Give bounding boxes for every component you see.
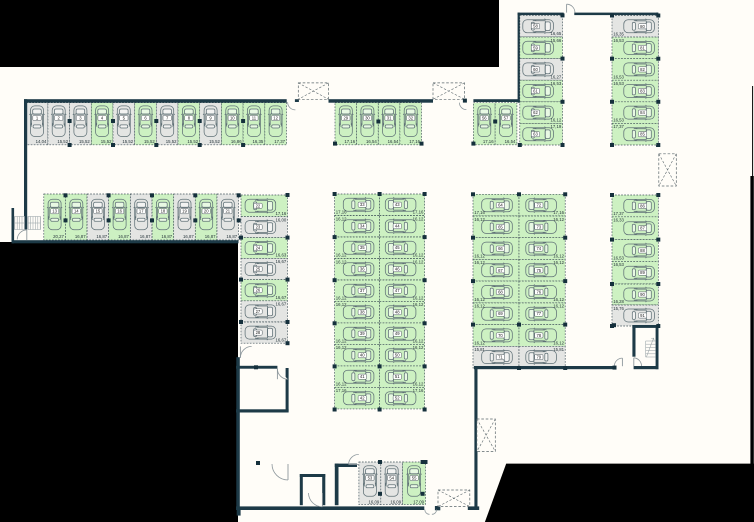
svg-text:16,87: 16,87 <box>226 234 237 239</box>
svg-text:16,12: 16,12 <box>553 217 564 222</box>
svg-text:54: 54 <box>389 476 394 481</box>
svg-text:16,12: 16,12 <box>474 217 485 222</box>
svg-text:16,12: 16,12 <box>336 339 347 344</box>
svg-text:16,12: 16,12 <box>413 339 424 344</box>
svg-text:73: 73 <box>536 224 541 229</box>
svg-text:52: 52 <box>395 396 400 401</box>
svg-text:49: 49 <box>395 331 400 336</box>
svg-text:23: 23 <box>256 225 261 230</box>
svg-text:17,19: 17,19 <box>551 124 562 129</box>
svg-text:16,12: 16,12 <box>553 341 564 346</box>
svg-text:22: 22 <box>256 203 261 208</box>
svg-text:16,12: 16,12 <box>413 296 424 301</box>
svg-text:15,52: 15,52 <box>144 139 155 144</box>
svg-text:72: 72 <box>536 203 541 208</box>
svg-text:15,52: 15,52 <box>187 139 198 144</box>
svg-text:40: 40 <box>360 353 365 358</box>
svg-text:44: 44 <box>395 224 400 229</box>
svg-text:16,67: 16,67 <box>276 295 287 300</box>
svg-text:17,16: 17,16 <box>553 210 564 215</box>
svg-text:15,66: 15,66 <box>551 38 562 43</box>
svg-text:16: 16 <box>117 209 122 214</box>
svg-text:16,27: 16,27 <box>551 74 562 79</box>
svg-text:36: 36 <box>360 267 365 272</box>
svg-text:37: 37 <box>360 288 365 293</box>
svg-text:12: 12 <box>273 116 278 121</box>
svg-text:50: 50 <box>395 353 400 358</box>
svg-text:24: 24 <box>256 246 261 251</box>
svg-text:16,12: 16,12 <box>474 260 485 265</box>
svg-text:14: 14 <box>74 209 79 214</box>
svg-text:16,35: 16,35 <box>253 139 264 144</box>
svg-text:82: 82 <box>640 67 645 72</box>
svg-text:21: 21 <box>225 209 230 214</box>
svg-text:17,09: 17,09 <box>413 499 424 504</box>
svg-text:18: 18 <box>161 209 166 214</box>
svg-text:55: 55 <box>412 476 417 481</box>
svg-text:16,09: 16,09 <box>390 499 401 504</box>
svg-text:45: 45 <box>395 245 400 250</box>
svg-text:17,16: 17,16 <box>474 210 485 215</box>
svg-text:16,65: 16,65 <box>551 31 562 36</box>
svg-text:16,12: 16,12 <box>474 341 485 346</box>
svg-text:16,12: 16,12 <box>474 297 485 302</box>
svg-text:16,54: 16,54 <box>388 139 399 144</box>
svg-text:16,33: 16,33 <box>613 218 624 223</box>
svg-text:19: 19 <box>182 209 187 214</box>
svg-text:51: 51 <box>395 374 400 379</box>
svg-text:16,87: 16,87 <box>75 234 86 239</box>
svg-text:16,87: 16,87 <box>96 234 107 239</box>
svg-text:16,87: 16,87 <box>118 234 129 239</box>
svg-text:16,87: 16,87 <box>183 234 194 239</box>
svg-text:86: 86 <box>640 203 645 208</box>
svg-text:16,35: 16,35 <box>613 31 624 36</box>
svg-text:10: 10 <box>230 116 235 121</box>
svg-text:81: 81 <box>640 45 645 50</box>
svg-text:16,53: 16,53 <box>613 256 624 261</box>
svg-text:88: 88 <box>640 248 645 253</box>
svg-text:87: 87 <box>640 226 645 231</box>
svg-text:16,54: 16,54 <box>505 139 516 144</box>
svg-text:89: 89 <box>640 270 645 275</box>
svg-text:35: 35 <box>360 245 365 250</box>
svg-text:42: 42 <box>360 396 365 401</box>
svg-text:28: 28 <box>256 330 261 335</box>
svg-text:16,53: 16,53 <box>613 81 624 86</box>
svg-text:16,28: 16,28 <box>613 299 624 304</box>
svg-text:15,81: 15,81 <box>474 347 485 352</box>
svg-text:34: 34 <box>360 224 365 229</box>
svg-text:20: 20 <box>204 209 209 214</box>
svg-text:77: 77 <box>536 311 541 316</box>
svg-text:17,37: 17,37 <box>613 211 624 216</box>
svg-text:75: 75 <box>536 268 541 273</box>
svg-text:16,53: 16,53 <box>613 38 624 43</box>
svg-text:16,12: 16,12 <box>336 259 347 264</box>
svg-text:17: 17 <box>139 209 144 214</box>
svg-text:15,52: 15,52 <box>57 139 68 144</box>
svg-text:76: 76 <box>536 290 541 295</box>
svg-text:26: 26 <box>256 288 261 293</box>
svg-text:16,12: 16,12 <box>474 304 485 309</box>
svg-text:90: 90 <box>640 292 645 297</box>
svg-text:65: 65 <box>498 224 503 229</box>
svg-text:33: 33 <box>360 202 365 207</box>
svg-text:29: 29 <box>343 116 348 121</box>
svg-text:11: 11 <box>252 116 257 121</box>
svg-text:15,81: 15,81 <box>553 347 564 352</box>
svg-text:16,12: 16,12 <box>413 216 424 221</box>
svg-text:15,52: 15,52 <box>101 139 112 144</box>
svg-text:83: 83 <box>640 89 645 94</box>
svg-text:32: 32 <box>408 116 413 121</box>
svg-text:15: 15 <box>96 209 101 214</box>
svg-text:16,12: 16,12 <box>553 254 564 259</box>
svg-text:16,87: 16,87 <box>161 234 172 239</box>
svg-text:74: 74 <box>536 246 541 251</box>
svg-text:16,12: 16,12 <box>553 260 564 265</box>
svg-text:13: 13 <box>52 209 57 214</box>
svg-text:16,54: 16,54 <box>366 139 377 144</box>
svg-text:84: 84 <box>640 110 645 115</box>
svg-text:17,37: 17,37 <box>613 124 624 129</box>
svg-text:61: 61 <box>533 89 538 94</box>
svg-text:16,12: 16,12 <box>413 259 424 264</box>
svg-text:64: 64 <box>498 203 503 208</box>
svg-text:16,12: 16,12 <box>553 297 564 302</box>
svg-text:57: 57 <box>504 116 509 121</box>
svg-text:15,52: 15,52 <box>79 139 90 144</box>
svg-text:16,12: 16,12 <box>413 345 424 350</box>
svg-text:70: 70 <box>498 333 503 338</box>
svg-text:16,67: 16,67 <box>276 302 287 307</box>
svg-text:15,52: 15,52 <box>166 139 177 144</box>
svg-text:17,16: 17,16 <box>276 211 287 216</box>
svg-text:58: 58 <box>533 24 538 29</box>
svg-text:20,27: 20,27 <box>53 234 64 239</box>
svg-text:17,16: 17,16 <box>336 388 347 393</box>
svg-text:16,12: 16,12 <box>336 296 347 301</box>
svg-text:15,52: 15,52 <box>209 139 220 144</box>
svg-text:17,16: 17,16 <box>413 388 424 393</box>
svg-text:16,12: 16,12 <box>413 302 424 307</box>
svg-text:14,04: 14,04 <box>36 139 47 144</box>
svg-text:16,12: 16,12 <box>413 382 424 387</box>
svg-text:25: 25 <box>256 267 261 272</box>
svg-text:63: 63 <box>533 132 538 137</box>
svg-text:17,16: 17,16 <box>413 210 424 215</box>
svg-text:91: 91 <box>640 313 645 318</box>
svg-text:15,52: 15,52 <box>122 139 133 144</box>
svg-text:16,09: 16,09 <box>369 499 380 504</box>
svg-text:80: 80 <box>640 24 645 29</box>
svg-text:16,67: 16,67 <box>276 259 287 264</box>
svg-text:16,86: 16,86 <box>231 139 242 144</box>
svg-text:16,12: 16,12 <box>413 253 424 258</box>
svg-text:17,16: 17,16 <box>409 139 420 144</box>
svg-text:16,53: 16,53 <box>613 74 624 79</box>
svg-text:16,12: 16,12 <box>553 304 564 309</box>
svg-text:56: 56 <box>482 116 487 121</box>
svg-text:38: 38 <box>360 310 365 315</box>
svg-text:59: 59 <box>533 45 538 50</box>
svg-text:16,00: 16,00 <box>276 217 287 222</box>
svg-text:16,12: 16,12 <box>336 302 347 307</box>
svg-text:16,12: 16,12 <box>336 345 347 350</box>
svg-text:48: 48 <box>395 310 400 315</box>
svg-text:16,87: 16,87 <box>205 234 216 239</box>
svg-text:16,67: 16,67 <box>276 337 287 342</box>
svg-text:16,53: 16,53 <box>613 118 624 123</box>
svg-text:17,16: 17,16 <box>344 139 355 144</box>
svg-text:16,53: 16,53 <box>551 81 562 86</box>
svg-text:71: 71 <box>498 355 503 360</box>
svg-text:43: 43 <box>395 202 400 207</box>
svg-text:62: 62 <box>533 110 538 115</box>
svg-text:16,53: 16,53 <box>613 262 624 267</box>
svg-text:17,16: 17,16 <box>336 210 347 215</box>
svg-text:46: 46 <box>395 267 400 272</box>
svg-text:66: 66 <box>498 246 503 251</box>
svg-text:17,37: 17,37 <box>274 139 285 144</box>
svg-text:16,12: 16,12 <box>551 118 562 123</box>
svg-text:85: 85 <box>640 132 645 137</box>
svg-text:53: 53 <box>368 476 373 481</box>
svg-text:30: 30 <box>365 116 370 121</box>
svg-text:69: 69 <box>498 311 503 316</box>
svg-text:16,87: 16,87 <box>140 234 151 239</box>
svg-text:16,12: 16,12 <box>336 216 347 221</box>
svg-text:15,76: 15,76 <box>613 306 624 311</box>
svg-text:16,63: 16,63 <box>276 253 287 258</box>
svg-text:78: 78 <box>536 333 541 338</box>
svg-text:41: 41 <box>360 374 365 379</box>
svg-text:39: 39 <box>360 331 365 336</box>
svg-text:47: 47 <box>395 288 400 293</box>
svg-text:16,12: 16,12 <box>336 253 347 258</box>
svg-text:27: 27 <box>256 309 261 314</box>
svg-text:31: 31 <box>387 116 392 121</box>
svg-text:79: 79 <box>536 355 541 360</box>
svg-text:16,12: 16,12 <box>336 382 347 387</box>
svg-text:60: 60 <box>533 67 538 72</box>
svg-text:17,16: 17,16 <box>483 139 494 144</box>
svg-text:67: 67 <box>498 268 503 273</box>
svg-text:68: 68 <box>498 290 503 295</box>
svg-text:16,12: 16,12 <box>474 254 485 259</box>
